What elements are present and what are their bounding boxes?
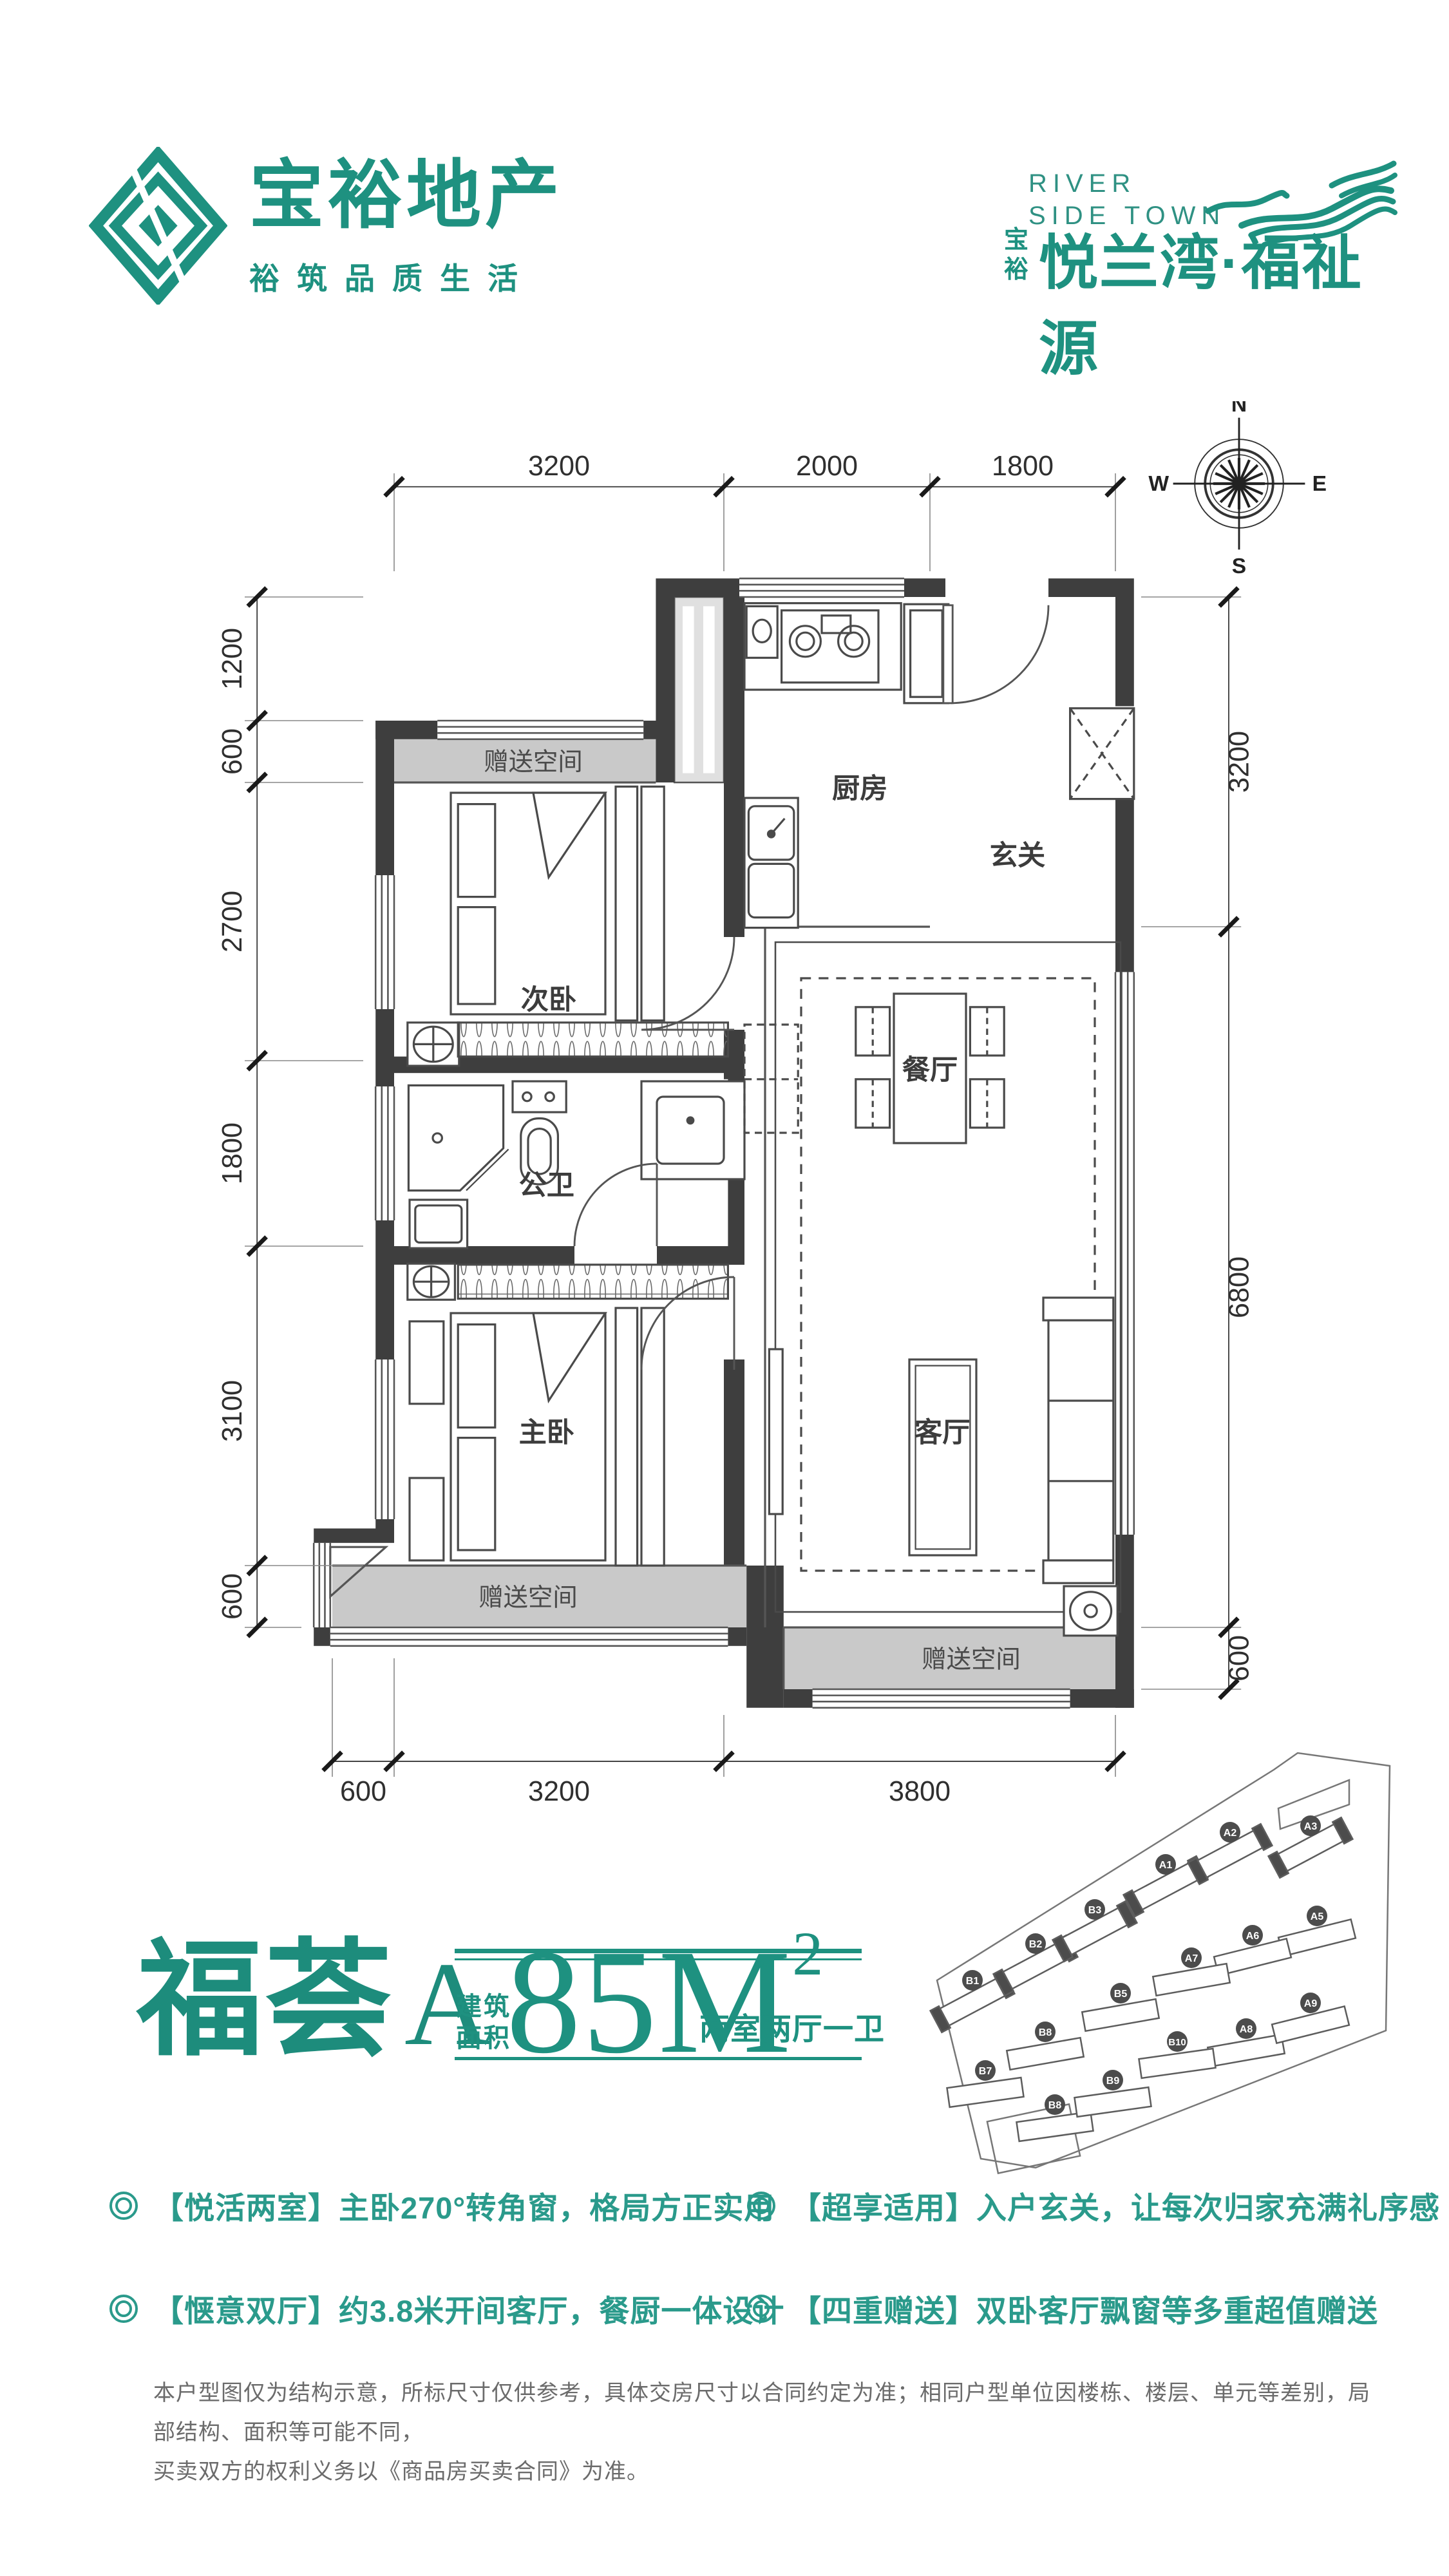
svg-text:B2: B2	[1029, 1939, 1043, 1950]
svg-text:1800: 1800	[992, 451, 1054, 482]
svg-text:B8: B8	[1039, 2027, 1052, 2038]
svg-text:B10: B10	[1168, 2037, 1186, 2048]
svg-text:600: 600	[217, 728, 248, 775]
svg-text:3100: 3100	[217, 1380, 248, 1442]
svg-text:600: 600	[217, 1573, 248, 1620]
bullet-ring-icon	[109, 2295, 138, 2323]
brand-diamond-icon	[89, 147, 227, 305]
site-plan: A1 A2 A3 A5 A6 A7 A8 A9 B1 B2 B3 B5 B7 B…	[927, 1739, 1397, 2177]
feature-text: 【悦活两室】主卧270°转角窗，格局方正实用	[153, 2183, 775, 2228]
room-label-dining: 餐厅	[902, 1055, 958, 1086]
area-caption: 建筑 面积	[456, 1991, 511, 2054]
svg-text:B7: B7	[979, 2066, 992, 2077]
floor-plan: 次卧 厨房 玄关 餐厅 公卫 主卧 客厅 赠送空间 赠送空间 赠送空间	[209, 401, 1342, 1813]
bullet-ring-icon	[747, 2295, 775, 2323]
svg-text:B8: B8	[1048, 2100, 1062, 2111]
svg-text:2700: 2700	[217, 891, 248, 952]
svg-text:600: 600	[1224, 1635, 1255, 1681]
svg-text:A3: A3	[1304, 1821, 1318, 1832]
disclaimer: 本户型图仅为结构示意，所标尺寸仅供参考，具体交房尺寸以合同约定为准；相同户型单位…	[153, 2374, 1383, 2492]
unit-title: 福荟 A	[137, 1937, 491, 2071]
svg-text:B5: B5	[1114, 1989, 1128, 2000]
svg-text:A2: A2	[1224, 1828, 1237, 1839]
gift-label-top: 赠送空间	[484, 748, 583, 776]
svg-text:600: 600	[340, 1776, 386, 1807]
svg-text:A8: A8	[1240, 2024, 1253, 2035]
svg-text:B1: B1	[966, 1976, 980, 1987]
svg-text:E: E	[1312, 472, 1327, 496]
project-name: 悦兰湾·福祉源	[1039, 215, 1412, 386]
svg-text:1200: 1200	[217, 628, 248, 690]
svg-text:3200: 3200	[528, 1776, 590, 1807]
project-logo: RIVER SIDE TOWN 宝 裕 悦兰湾·福祉源	[1000, 153, 1412, 305]
feature-item: 【悦活两室】主卧270°转角窗，格局方正实用	[109, 2183, 775, 2228]
room-label-bedroom2: 次卧	[521, 985, 576, 1016]
area-value: 85M2	[506, 1918, 823, 2079]
feature-item: 【四重赠送】双卧客厅飘窗等多重超值赠送	[747, 2286, 1378, 2331]
brand-tagline: 裕筑品质生活	[249, 254, 563, 298]
gift-label-bottom-right: 赠送空间	[922, 1645, 1021, 1673]
svg-text:A9: A9	[1304, 1998, 1318, 2009]
room-label-kitchen: 厨房	[832, 773, 887, 804]
svg-text:3200: 3200	[528, 451, 590, 482]
room-label-living: 客厅	[914, 1417, 970, 1448]
svg-text:W: W	[1148, 472, 1169, 496]
project-prefix: 宝 裕	[1004, 225, 1028, 285]
bullet-ring-icon	[747, 2192, 775, 2220]
feature-text: 【惬意双厅】约3.8米开间客厅，餐厨一体设计	[153, 2286, 784, 2331]
svg-text:A6: A6	[1246, 1931, 1260, 1942]
svg-text:A7: A7	[1185, 1953, 1198, 1964]
flyer-page: { "colors": {"accent":"#1e9180","feature…	[0, 0, 1449, 2576]
svg-text:S: S	[1232, 554, 1246, 578]
site-boundary	[937, 1753, 1390, 2168]
gift-label-bottom-left: 赠送空间	[478, 1584, 578, 1611]
svg-text:N: N	[1231, 401, 1247, 417]
bullet-ring-icon	[109, 2192, 138, 2220]
brand-name: 宝裕地产	[249, 147, 563, 243]
svg-text:1800: 1800	[217, 1122, 248, 1184]
feature-item: 【惬意双厅】约3.8米开间客厅，餐厨一体设计	[109, 2286, 784, 2331]
unit-name: 福荟	[137, 1937, 394, 2066]
feature-text: 【超享适用】入户玄关，让每次归家充满礼序感	[791, 2183, 1440, 2228]
svg-text:A5: A5	[1311, 1911, 1324, 1922]
svg-text:B9: B9	[1106, 2076, 1120, 2087]
svg-text:3200: 3200	[1224, 731, 1255, 793]
feature-item: 【超享适用】入户玄关，让每次归家充满礼序感	[747, 2183, 1440, 2228]
room-label-entry: 玄关	[990, 840, 1045, 871]
svg-text:A1: A1	[1159, 1860, 1173, 1871]
disclaimer-line2: 买卖双方的权利义务以《商品房买卖合同》为准。	[153, 2452, 1383, 2492]
room-label-master: 主卧	[519, 1417, 574, 1448]
svg-text:B3: B3	[1088, 1905, 1102, 1916]
compass-icon: N S W E	[1148, 401, 1327, 578]
feature-text: 【四重赠送】双卧客厅飘窗等多重超值赠送	[791, 2286, 1378, 2331]
disclaimer-line1: 本户型图仅为结构示意，所标尺寸仅供参考，具体交房尺寸以合同约定为准；相同户型单位…	[153, 2374, 1383, 2452]
room-label-bathroom: 公卫	[519, 1170, 574, 1201]
brand-logo: 宝裕地产 裕筑品质生活	[89, 147, 563, 305]
svg-text:6800: 6800	[1224, 1256, 1255, 1318]
layout-summary: 两室两厅一卫	[699, 2004, 885, 2049]
svg-text:2000: 2000	[796, 451, 858, 482]
